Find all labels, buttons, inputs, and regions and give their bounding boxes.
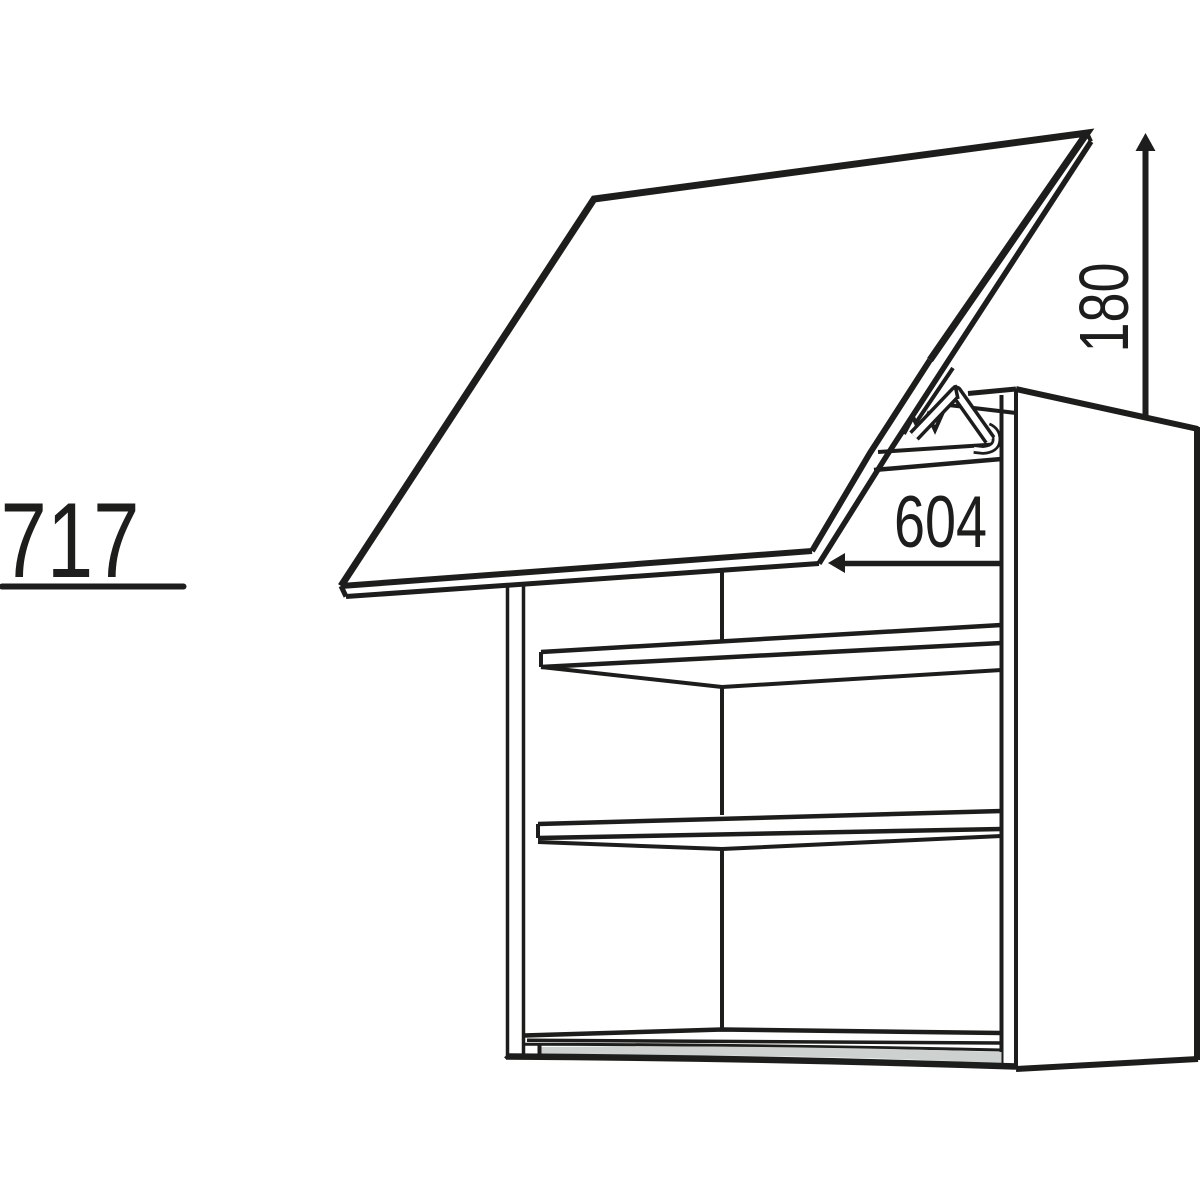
svg-text:180: 180	[1065, 263, 1143, 353]
svg-text:604: 604	[894, 482, 987, 563]
svg-text:717: 717	[1, 480, 140, 600]
